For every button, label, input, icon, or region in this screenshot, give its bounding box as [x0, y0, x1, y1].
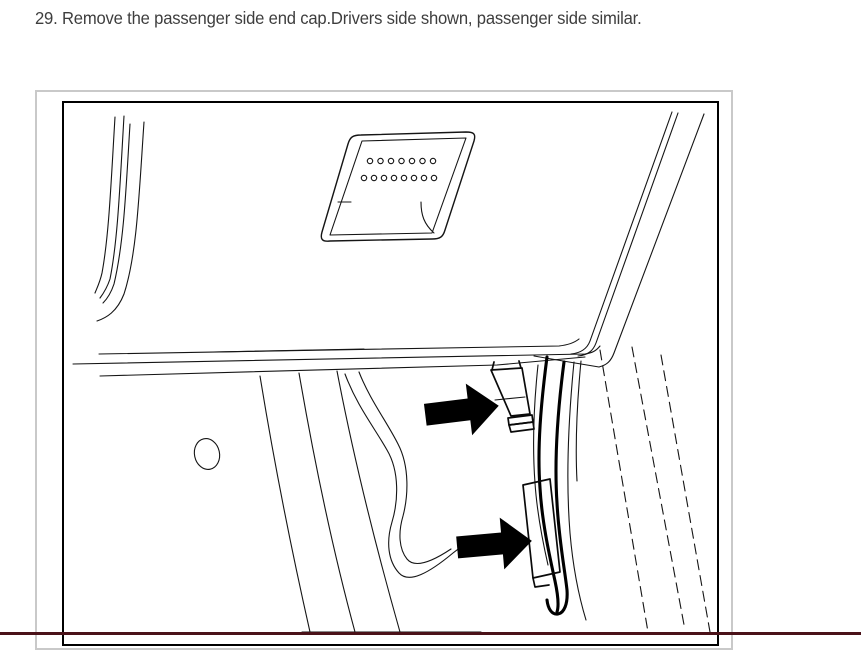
upper-clip [491, 361, 534, 432]
pointer-arrows [422, 380, 534, 573]
right-pillar-lines [571, 112, 704, 367]
door-opening-lines [600, 347, 710, 632]
window-bottom-edge [0, 632, 861, 635]
page: { "instruction": { "step_text": "29. Rem… [0, 0, 861, 636]
panel-hole [192, 436, 223, 472]
grille-holes-top-row [367, 158, 435, 163]
end-cap-diagram [64, 103, 717, 644]
dash-edge-lines [73, 339, 600, 376]
speaker-grille [321, 132, 474, 241]
grille-holes-bottom-row [361, 175, 436, 180]
end-cap-outline [534, 357, 586, 620]
lower-clip-pointer-arrow-icon [455, 515, 534, 573]
upper-clip-pointer-arrow-icon [422, 380, 502, 441]
figure-drawing [62, 101, 719, 646]
instruction-step-text: 29. Remove the passenger side end cap.Dr… [35, 8, 814, 29]
left-pillar-lines [95, 116, 144, 321]
